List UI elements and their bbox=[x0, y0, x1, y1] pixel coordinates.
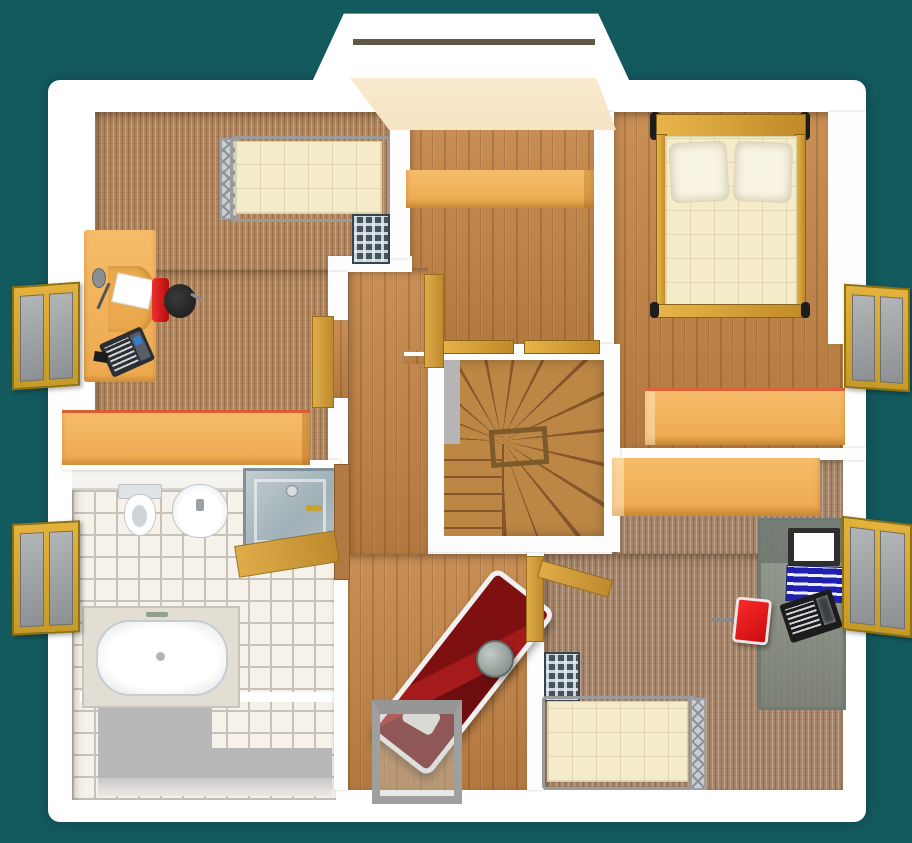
window-right-bottom-pane1 bbox=[850, 527, 875, 626]
pillow-right bbox=[733, 141, 793, 203]
bed-head-rail bbox=[656, 114, 806, 138]
wall-middle-topright bbox=[594, 112, 614, 354]
bed-mattress-br bbox=[547, 701, 688, 782]
void-area-lower bbox=[98, 748, 332, 778]
pillow-left bbox=[668, 141, 729, 204]
window-right-bottom-pane2 bbox=[880, 530, 905, 629]
door-middle-room bbox=[424, 274, 444, 368]
round-side-table bbox=[476, 640, 514, 678]
office-chair-red bbox=[150, 276, 200, 326]
monitor bbox=[788, 528, 840, 566]
radiator-top-left-room bbox=[352, 214, 390, 264]
window-right-bottom bbox=[842, 516, 912, 639]
chair-red-bottom-right bbox=[726, 596, 774, 648]
floor-plan-stage bbox=[0, 0, 912, 843]
console-table bbox=[372, 700, 462, 804]
bed-post-bl bbox=[650, 302, 659, 318]
window-right-top bbox=[844, 284, 910, 393]
bed-post-br bbox=[801, 302, 810, 318]
window-left-bottom-pane2 bbox=[49, 531, 73, 626]
wardrobe-bottom-right bbox=[612, 458, 820, 516]
window-left-bottom-pane1 bbox=[20, 532, 44, 627]
wall-bathroom-east bbox=[334, 576, 348, 790]
window-right-top-pane2 bbox=[880, 296, 903, 384]
window-left-top-pane2 bbox=[49, 292, 73, 380]
sideboard-top-left bbox=[62, 410, 310, 465]
stair-landing-shadow bbox=[444, 360, 460, 444]
bench-top-right bbox=[645, 388, 845, 445]
desk-lamp-head bbox=[92, 268, 106, 288]
bathroom-door-jamb bbox=[334, 464, 350, 580]
laptop-screen-blue bbox=[133, 336, 143, 346]
bed-lattice-end-br bbox=[690, 698, 706, 790]
window-left-bottom bbox=[12, 520, 80, 636]
stair-handrail bbox=[489, 426, 550, 468]
toilet bbox=[118, 484, 160, 536]
bed-mattress bbox=[235, 141, 382, 214]
stair-threshold-right bbox=[524, 340, 600, 354]
window-left-top bbox=[12, 282, 80, 391]
laptop-black-keys bbox=[785, 601, 822, 635]
void-area-fade bbox=[98, 778, 332, 796]
basin-faucet bbox=[196, 499, 204, 511]
sideboard-middle-room bbox=[406, 170, 594, 208]
single-bed-top-left bbox=[220, 134, 388, 220]
dormer bbox=[312, 10, 630, 82]
washbasin bbox=[172, 484, 228, 538]
single-bed-bottom-right bbox=[540, 692, 704, 792]
bathtub bbox=[82, 606, 240, 708]
chair-red-leg bbox=[712, 618, 734, 621]
door-bedroom-top-left bbox=[312, 316, 334, 408]
toilet-opening bbox=[132, 505, 147, 527]
hall-corridor-floor bbox=[348, 268, 428, 554]
monitor-screen bbox=[794, 533, 834, 561]
shower-fixture-brass bbox=[306, 505, 322, 511]
winder-staircase bbox=[444, 360, 604, 536]
window-left-top-pane1 bbox=[20, 294, 44, 382]
double-bed bbox=[652, 112, 808, 316]
bathtub-basin bbox=[96, 620, 228, 696]
chair-seat bbox=[164, 284, 196, 318]
bathtub-faucet bbox=[146, 612, 168, 617]
bathtub-drain bbox=[156, 652, 165, 661]
wall-corridor-left-upper bbox=[328, 272, 348, 320]
bed-foot-rail bbox=[656, 304, 806, 318]
dormer-beam bbox=[353, 39, 595, 45]
stair-threshold-left bbox=[438, 340, 514, 354]
chair-red-seatback bbox=[732, 596, 773, 646]
shower-head bbox=[286, 485, 298, 497]
toilet-bowl bbox=[124, 494, 156, 536]
window-right-top-pane1 bbox=[852, 294, 875, 382]
